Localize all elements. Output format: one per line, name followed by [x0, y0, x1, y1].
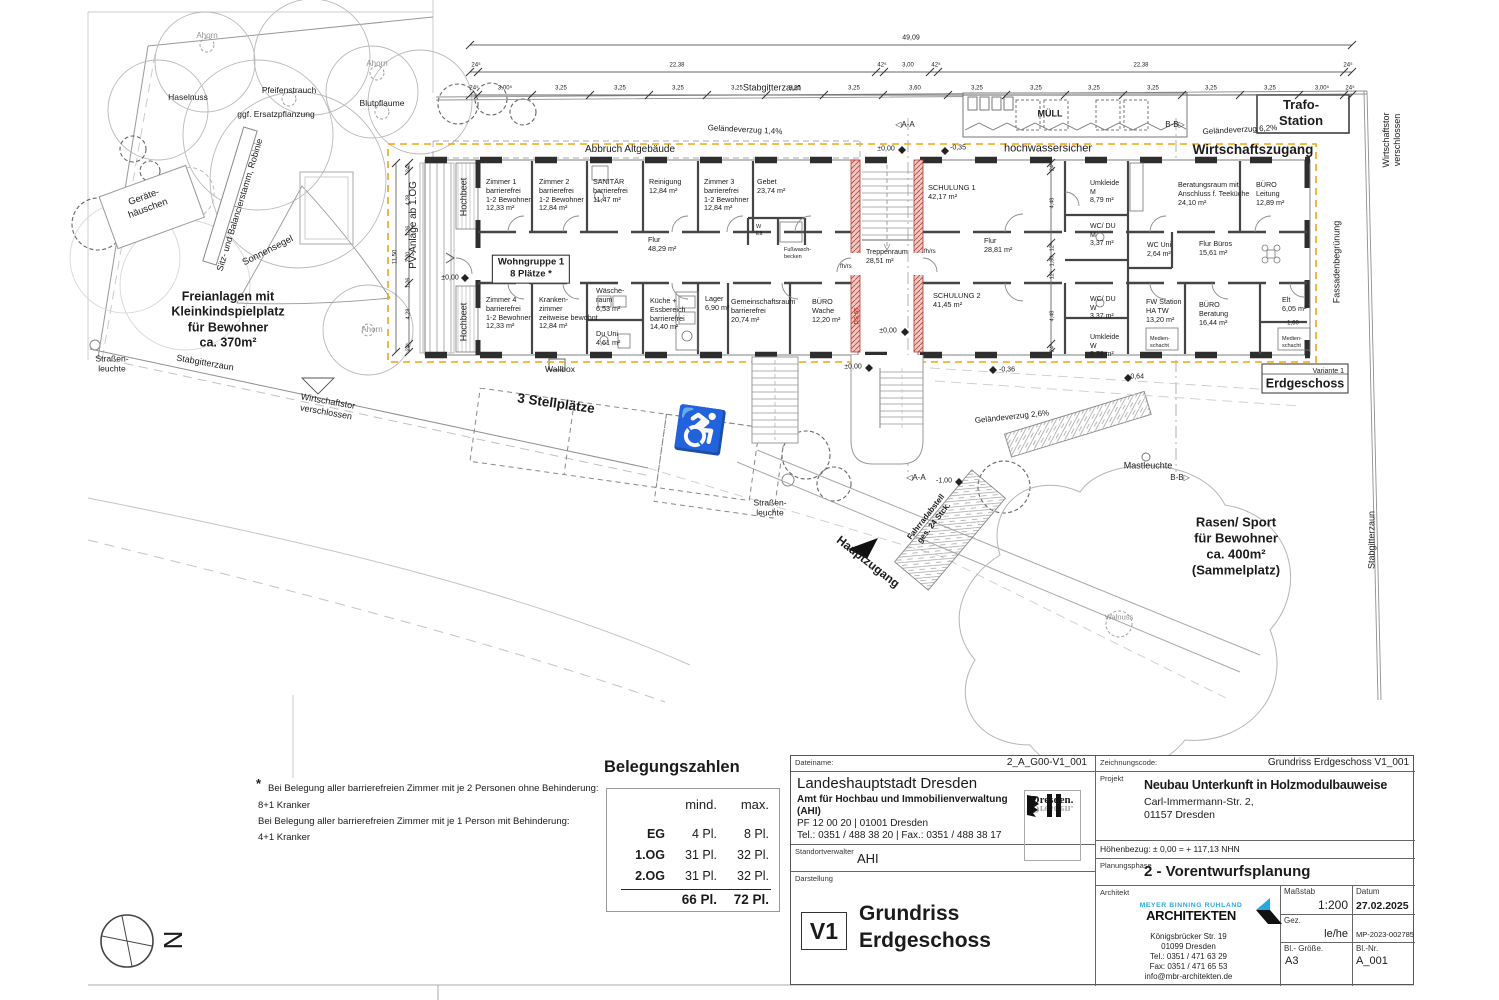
planungsphase-value: 2 - Vorentwurfsplanung: [1144, 863, 1310, 880]
footnote-line: 8+1 Kranker: [258, 800, 310, 811]
architekt-label: Architekt: [1100, 888, 1129, 897]
architect-logo-arrow-icon: [1254, 898, 1284, 926]
sheet-title: Grundriss Erdgeschoss: [859, 900, 991, 955]
cell-standortverwalter: Standortverwalter AHI: [791, 845, 1096, 872]
zeichnungscode-label: Zeichnungscode:: [1100, 758, 1157, 767]
dresden-crest-icon: [1025, 793, 1065, 819]
occupancy-max: 8 Pl.: [717, 827, 769, 841]
architect-logo-line2: ARCHITEKTEN: [1116, 909, 1266, 922]
occupancy-max: 32 Pl.: [717, 869, 769, 883]
occupancy-total-min: 66 Pl.: [665, 892, 717, 907]
standortverwalter-label: Standortverwalter: [795, 847, 854, 856]
cell-planungsphase: Planungsphase 2 - Vorentwurfsplanung: [1096, 859, 1415, 886]
occupancy-total-divider: [621, 889, 771, 890]
occupancy-title: Belegungszahlen: [604, 757, 740, 777]
architect-addr: 01099 Dresden: [1096, 942, 1281, 952]
cell-owner: Landeshauptstadt Dresden Amt für Hochbau…: [791, 772, 1096, 845]
owner-post: PF 12 00 20 | 01001 Dresden: [797, 818, 928, 829]
owner-name: Landeshauptstadt Dresden: [797, 775, 977, 792]
occupancy-floor: 2.OG: [607, 869, 665, 883]
sheet-code-badge: V1: [801, 912, 847, 950]
hoehenbezug-value: Höhenbezug: ± 0,00 = + 117,13 NHN: [1100, 844, 1240, 854]
occupancy-min: 4 Pl.: [665, 827, 717, 841]
darstellung-label: Darstellung: [795, 874, 833, 883]
projekt-addr1: Carl-Immermann-Str. 2,: [1144, 796, 1254, 808]
footnote-line: Bei Belegung aller barrierefreien Zimmer…: [258, 816, 570, 827]
standortverwalter-value: AHI: [857, 851, 879, 866]
datum-value: 27.02.2025: [1356, 900, 1409, 912]
cell-zeichnungscode: Zeichnungscode: Grundriss Erdgeschoss V1…: [1096, 756, 1415, 772]
massstab-value: 1:200: [1318, 898, 1348, 912]
projekt-title: Neubau Unterkunft in Holzmodulbauweise: [1144, 778, 1387, 792]
occupancy-min: 31 Pl.: [665, 869, 717, 883]
footnote-line: Bei Belegung aller barrierefreien Zimmer…: [268, 783, 599, 794]
gez-value: le/he: [1324, 928, 1348, 940]
gez-label: Gez.: [1284, 916, 1301, 925]
blnr-value: A_001: [1356, 955, 1388, 967]
zeichnungscode-value: Grundriss Erdgeschoss V1_001: [1268, 757, 1409, 768]
architect-addr: Tel.: 0351 / 471 63 29: [1096, 952, 1281, 962]
cell-hoehenbezug: Höhenbezug: ± 0,00 = + 117,13 NHN: [1096, 841, 1415, 859]
occupancy-col-min: mind.: [665, 797, 717, 812]
cell-blnr: Bl.-Nr. A_001: [1353, 943, 1415, 986]
footnote-star: *: [256, 776, 261, 792]
datum-label: Datum: [1356, 887, 1380, 896]
blnr-label: Bl.-Nr.: [1356, 944, 1378, 953]
cell-projekt: Projekt Neubau Unterkunft in Holzmodulba…: [1096, 772, 1415, 841]
cell-datum: Datum 27.02.2025: [1353, 886, 1415, 915]
cell-darstellung: Darstellung V1 Grundriss Erdgeschoss: [791, 872, 1096, 986]
occupancy-floor: 1.OG: [607, 848, 665, 862]
cell-architekt: Architekt MEYER BINNING RUHLAND ARCHITEK…: [1096, 886, 1281, 986]
occupancy-min: 31 Pl.: [665, 848, 717, 862]
occupancy-total-max: 72 Pl.: [717, 892, 769, 907]
occupancy-max: 32 Pl.: [717, 848, 769, 862]
cell-gez: Gez. le/he: [1281, 915, 1353, 943]
architect-logo: MEYER BINNING RUHLAND ARCHITEKTEN: [1116, 902, 1266, 922]
projekt-addr2: 01157 Dresden: [1144, 809, 1215, 821]
blgroesse-label: Bl.- Größe.: [1284, 944, 1323, 953]
blgroesse-value: A3: [1285, 955, 1298, 967]
floor-plan-sheet: AhornAhornHaselnussPfeifenstrauchggf. Er…: [0, 0, 1499, 1000]
footnote-line: 4+1 Kranker: [258, 832, 310, 843]
occupancy-col-max: max.: [717, 797, 769, 812]
architect-addr: Fax: 0351 / 471 65 53: [1096, 962, 1281, 972]
cell-projektnr: MP-2023-002785: [1353, 915, 1415, 943]
projekt-label: Projekt: [1100, 774, 1123, 783]
architect-addr: info@mbr-architekten.de: [1096, 972, 1281, 982]
cell-massstab: Maßstab 1:200: [1281, 886, 1353, 915]
cell-blgroesse: Bl.- Größe. A3: [1281, 943, 1353, 986]
cell-dateiname: Dateiname: 2_A_G00-V1_001: [791, 756, 1096, 772]
dateiname-label: Dateiname:: [795, 758, 833, 767]
owner-tel: Tel.: 0351 / 488 38 20 | Fax.: 0351 / 48…: [797, 830, 1001, 841]
occupancy-floor: EG: [607, 827, 665, 841]
dateiname-value: 2_A_G00-V1_001: [1007, 757, 1087, 768]
owner-dept: Amt für Hochbau und Immobilienverwaltung…: [797, 794, 1017, 817]
projektnr-value: MP-2023-002785: [1356, 930, 1414, 939]
title-block: Dateiname: 2_A_G00-V1_001 Landeshauptsta…: [790, 755, 1414, 985]
massstab-label: Maßstab: [1284, 887, 1315, 896]
occupancy-table: mind.max. EG4 Pl.8 Pl. 1.OG31 Pl.32 Pl. …: [606, 788, 780, 912]
architect-addr: Königsbrücker Str. 19: [1096, 932, 1281, 942]
